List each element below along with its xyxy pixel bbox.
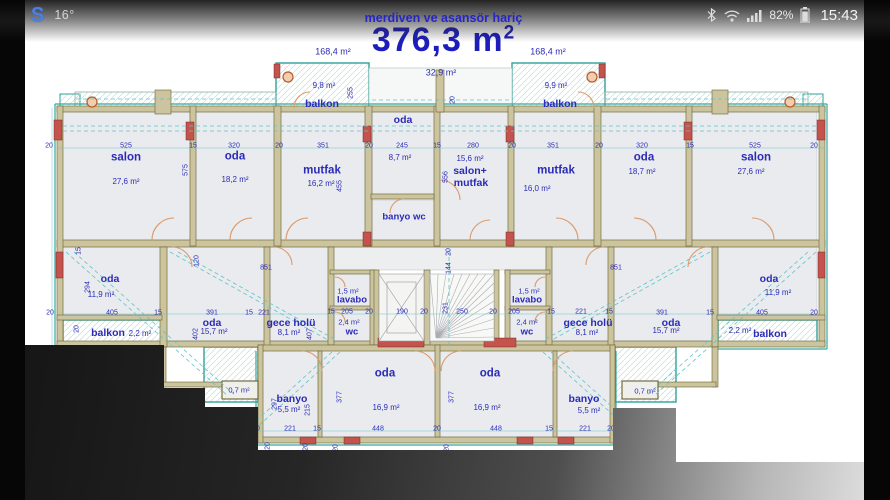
plan-label: 20: [420, 309, 428, 316]
plan-label: 16,2 m²: [307, 180, 334, 188]
plan-label: 27,6 m²: [112, 178, 139, 186]
plan-label: 351: [547, 143, 559, 150]
plan-note: merdiven ve asansör hariç: [25, 11, 862, 25]
plan-label: 297: [272, 398, 279, 410]
plan-label: 8,7 m²: [389, 154, 412, 162]
plan-label: wc: [521, 327, 534, 337]
plan-label: balkon: [753, 329, 787, 340]
plan-label: 9,8 m²: [313, 82, 336, 90]
plan-label: 215: [305, 404, 312, 416]
plan-label: 15: [327, 309, 335, 316]
plan-label: 2,4 m²: [338, 318, 359, 326]
plan-label: balkon: [305, 99, 339, 110]
plan-label: 20: [365, 309, 373, 316]
plan-label: 9,9 m²: [545, 82, 568, 90]
plan-label: 391: [206, 310, 218, 317]
plan-label: 15: [545, 426, 553, 433]
plan-label: salon: [741, 152, 771, 164]
plan-label: 15: [706, 310, 714, 317]
phone-screen: 168,4 m²168,4 m²32,9 m²9,8 m²balkon2559,…: [0, 0, 890, 500]
plan-label: 15: [547, 309, 555, 316]
plan-label: wc: [346, 327, 359, 337]
plan-label: banyo: [569, 394, 600, 405]
plan-label: 20: [46, 310, 54, 317]
plan-label: 851: [260, 265, 272, 272]
plan-label: oda: [634, 152, 654, 164]
plan-label: 377: [449, 391, 456, 403]
plan-label: mutfak: [454, 178, 488, 189]
plan-label: 16,0 m²: [523, 185, 550, 193]
plan-label: 15,7 m²: [200, 328, 227, 336]
plan-label: 2,2 m²: [729, 327, 752, 335]
plan-label: 20: [595, 143, 603, 150]
plan-label: 15: [605, 309, 613, 316]
plan-label: 455: [337, 180, 344, 192]
plan-label: 525: [749, 143, 761, 150]
plan-label: 16,9 m²: [473, 404, 500, 412]
plan-label: 221: [284, 426, 296, 433]
plan-label: 15: [686, 143, 694, 150]
plan-label: 20: [303, 443, 310, 451]
right-letterbox-bar: [864, 0, 890, 500]
plan-label: 294: [85, 281, 92, 293]
plan-label: 575: [183, 164, 190, 176]
plan-label: 15: [245, 310, 253, 317]
plan-label: 851: [610, 265, 622, 272]
left-letterbox-bar: [0, 0, 25, 500]
plan-label: oda: [760, 274, 779, 285]
plan-label: banyo: [277, 394, 308, 405]
plan-label: 407: [307, 328, 314, 340]
plan-label: 205: [508, 309, 520, 316]
plan-label: oda: [225, 151, 245, 163]
plan-label: 15: [189, 143, 197, 150]
plan-label: 120: [194, 255, 201, 267]
plan-label: mutfak: [303, 165, 341, 177]
plan-label: 405: [106, 310, 118, 317]
plan-label: 245: [396, 143, 408, 150]
plan-label: 391: [656, 310, 668, 317]
plan-label: balkon: [543, 99, 577, 110]
plan-label: 15,7 m²: [652, 327, 679, 335]
plan-label: salon: [111, 152, 141, 164]
plan-label: 221: [579, 426, 591, 433]
plan-label: 0,7 m²: [634, 387, 655, 395]
plan-label: 15: [154, 310, 162, 317]
plan-label: oda: [394, 115, 413, 126]
plan-label: lavabo: [337, 295, 367, 305]
plan-label: oda: [375, 368, 395, 380]
plan-label: 20: [450, 96, 457, 104]
plan-label: 405: [756, 310, 768, 317]
plan-label: lavabo: [512, 295, 542, 305]
plan-label: banyo wc: [382, 212, 425, 222]
plan-label: 15: [313, 426, 321, 433]
plan-label: 2,4 m²: [516, 318, 537, 326]
plan-label: gece holü: [266, 318, 315, 329]
plan-label: 320: [636, 143, 648, 150]
plan-label: 8,1 m²: [278, 329, 301, 337]
plan-label: 20: [265, 442, 272, 450]
plan-label: 221: [258, 310, 270, 317]
plan-label: 205: [341, 309, 353, 316]
plan-label: 20: [365, 143, 373, 150]
plan-label: 448: [490, 426, 502, 433]
plan-label: mutfak: [537, 165, 575, 177]
plan-label: 525: [120, 143, 132, 150]
plan-label: salon+: [453, 166, 487, 177]
plan-label: 20: [275, 143, 283, 150]
plan-label: 16,9 m²: [372, 404, 399, 412]
plan-label: 18,2 m²: [221, 176, 248, 184]
plan-label: 377: [337, 391, 344, 403]
plan-label: oda: [480, 368, 500, 380]
plan-label: 11,9 m²: [88, 291, 115, 299]
plan-label: 280: [467, 143, 479, 150]
plan-label: 15,6 m²: [456, 155, 483, 163]
plan-label: 15: [76, 247, 83, 255]
plan-label: 18,7 m²: [628, 168, 655, 176]
plan-label: 2,2 m²: [129, 330, 152, 338]
plan-label: 20: [45, 143, 53, 150]
plan-label: 556: [443, 171, 450, 183]
plan-label: 250: [456, 309, 468, 316]
plan-label: 320: [228, 143, 240, 150]
plan-label: 221: [575, 309, 587, 316]
plan-label: 255: [348, 87, 355, 99]
plan-label: oda: [101, 274, 120, 285]
plan-label: 5,5 m²: [278, 406, 301, 414]
plan-label: 5,5 m²: [578, 407, 601, 415]
plan-label: 190: [396, 309, 408, 316]
plan-label: 0,7 m²: [228, 386, 249, 394]
plan-label: 20: [446, 248, 453, 256]
plan-label: 8,1 m²: [576, 329, 599, 337]
plan-label: 20: [810, 143, 818, 150]
plan-label: 11,9 m²: [765, 289, 792, 297]
plan-label: 144: [446, 262, 453, 274]
plan-label: 32,9 m²: [426, 69, 457, 78]
plan-label: 20: [508, 143, 516, 150]
plan-label: 351: [317, 143, 329, 150]
plan-label: 20: [74, 325, 81, 333]
plan-label: balkon: [91, 328, 125, 339]
plan-label: 27,6 m²: [737, 168, 764, 176]
plan-label: 448: [372, 426, 384, 433]
plan-label: 231: [443, 302, 450, 314]
plan-label: 15: [433, 143, 441, 150]
plan-label: 20: [433, 426, 441, 433]
plan-label: 20: [810, 310, 818, 317]
plan-label: 20: [489, 309, 497, 316]
plan-label: 402: [193, 328, 200, 340]
plan-label: gece holü: [563, 318, 612, 329]
